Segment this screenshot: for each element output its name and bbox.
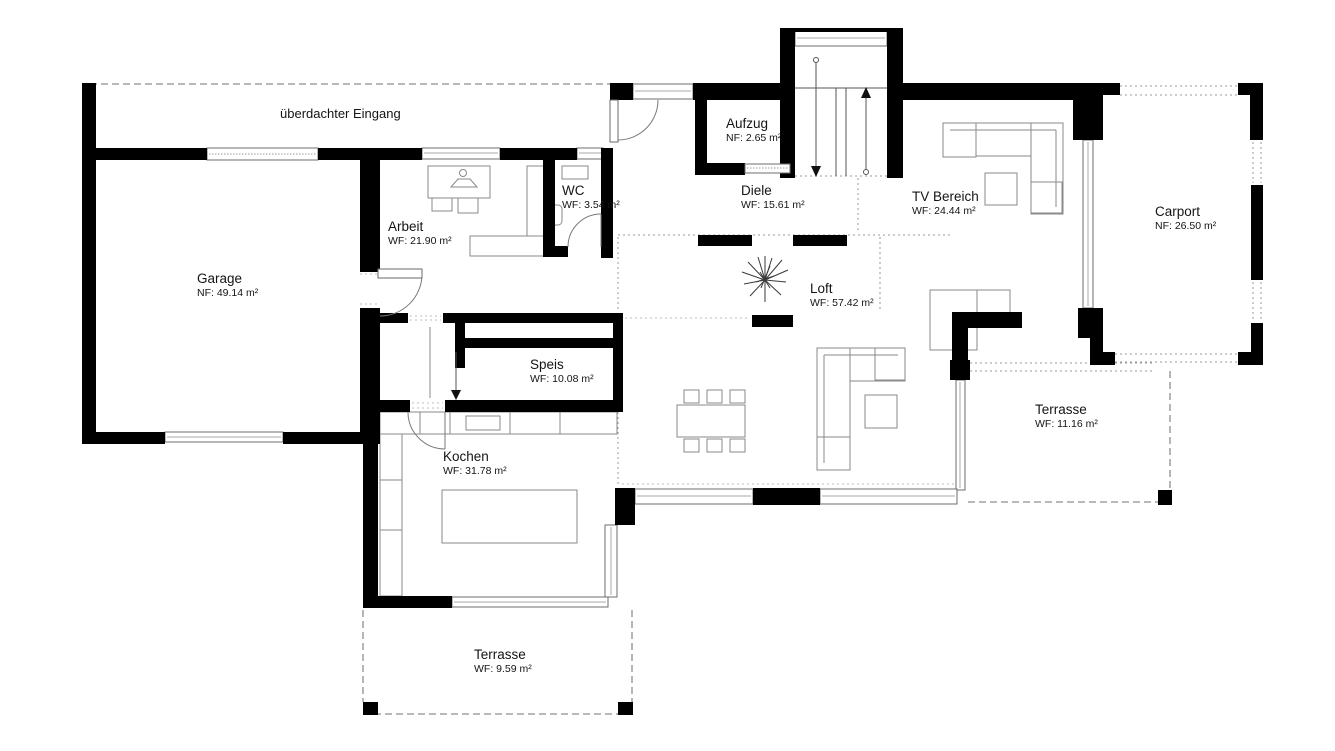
room-name: Arbeit (388, 219, 452, 234)
room-area: NF: 49.14 m² (197, 287, 258, 299)
wc-door (568, 214, 601, 247)
kitchen-east-glazing (605, 525, 617, 597)
elevator-door (745, 164, 790, 173)
staircase (795, 58, 887, 178)
tv-side-table (985, 173, 1017, 205)
label-terrasse-sued: Terrasse WF: 9.59 m² (474, 647, 532, 675)
label-carport: Carport NF: 26.50 m² (1155, 204, 1216, 232)
room-area: WF: 11.16 m² (1035, 418, 1098, 430)
desk (428, 166, 490, 213)
loft-east-glazing (956, 380, 965, 490)
floor-plan: überdachter Eingang Garage NF: 49.14 m² … (0, 0, 1335, 751)
garage-house-door (378, 269, 422, 316)
room-name: Garage (197, 271, 258, 286)
room-name: überdachter Eingang (280, 106, 401, 121)
dining-table (677, 390, 745, 452)
room-area: WF: 57.42 m² (810, 297, 874, 309)
wc-window (577, 148, 603, 159)
room-area: WF: 10.08 m² (530, 373, 594, 385)
label-arbeit: Arbeit WF: 21.90 m² (388, 219, 452, 247)
tv-east-glazing (1083, 140, 1093, 308)
kitchen-south-window (452, 597, 608, 607)
room-area: NF: 2.65 m² (726, 132, 781, 144)
room-name: Speis (530, 357, 594, 372)
label-terrasse-ost: Terrasse WF: 11.16 m² (1035, 402, 1098, 430)
room-area: WF: 24.44 m² (912, 205, 979, 217)
room-area: NF: 26.50 m² (1155, 220, 1216, 232)
entrance-glazing (633, 84, 693, 99)
plant-icon (742, 256, 788, 302)
room-area: WF: 3.54 m² (562, 199, 620, 211)
label-speis: Speis WF: 10.08 m² (530, 357, 594, 385)
room-name: Terrasse (1035, 402, 1098, 417)
coffee-table (865, 395, 897, 428)
room-name: Aufzug (726, 116, 781, 131)
label-diele: Diele WF: 15.61 m² (741, 183, 805, 211)
label-garage: Garage NF: 49.14 m² (197, 271, 258, 299)
label-wc: WC WF: 3.54 m² (562, 183, 620, 211)
room-area: WF: 31.78 m² (443, 465, 507, 477)
room-name: Loft (810, 281, 874, 296)
kitchen-island (442, 490, 577, 543)
garage-south-window (165, 432, 283, 442)
entrance-door (610, 100, 658, 142)
floor-plan-canvas (0, 0, 1335, 751)
stairs-up-arrow (861, 87, 871, 175)
room-name: Carport (1155, 204, 1216, 219)
stairwell-window (795, 30, 887, 46)
label-covered-entrance: überdachter Eingang (280, 106, 401, 121)
label-tv-bereich: TV Bereich WF: 24.44 m² (912, 189, 979, 217)
stairs-down-arrow (811, 58, 821, 178)
room-area: WF: 9.59 m² (474, 663, 532, 675)
garage-door-band (207, 148, 318, 160)
room-name: Diele (741, 183, 805, 198)
label-loft: Loft WF: 57.42 m² (810, 281, 874, 309)
arbeit-window (422, 148, 500, 159)
room-name: Kochen (443, 449, 507, 464)
room-name: WC (562, 183, 620, 198)
label-aufzug: Aufzug NF: 2.65 m² (726, 116, 781, 144)
label-kochen: Kochen WF: 31.78 m² (443, 449, 507, 477)
room-name: Terrasse (474, 647, 532, 662)
room-name: TV Bereich (912, 189, 979, 204)
room-area: WF: 15.61 m² (741, 199, 805, 211)
room-area: WF: 21.90 m² (388, 235, 452, 247)
